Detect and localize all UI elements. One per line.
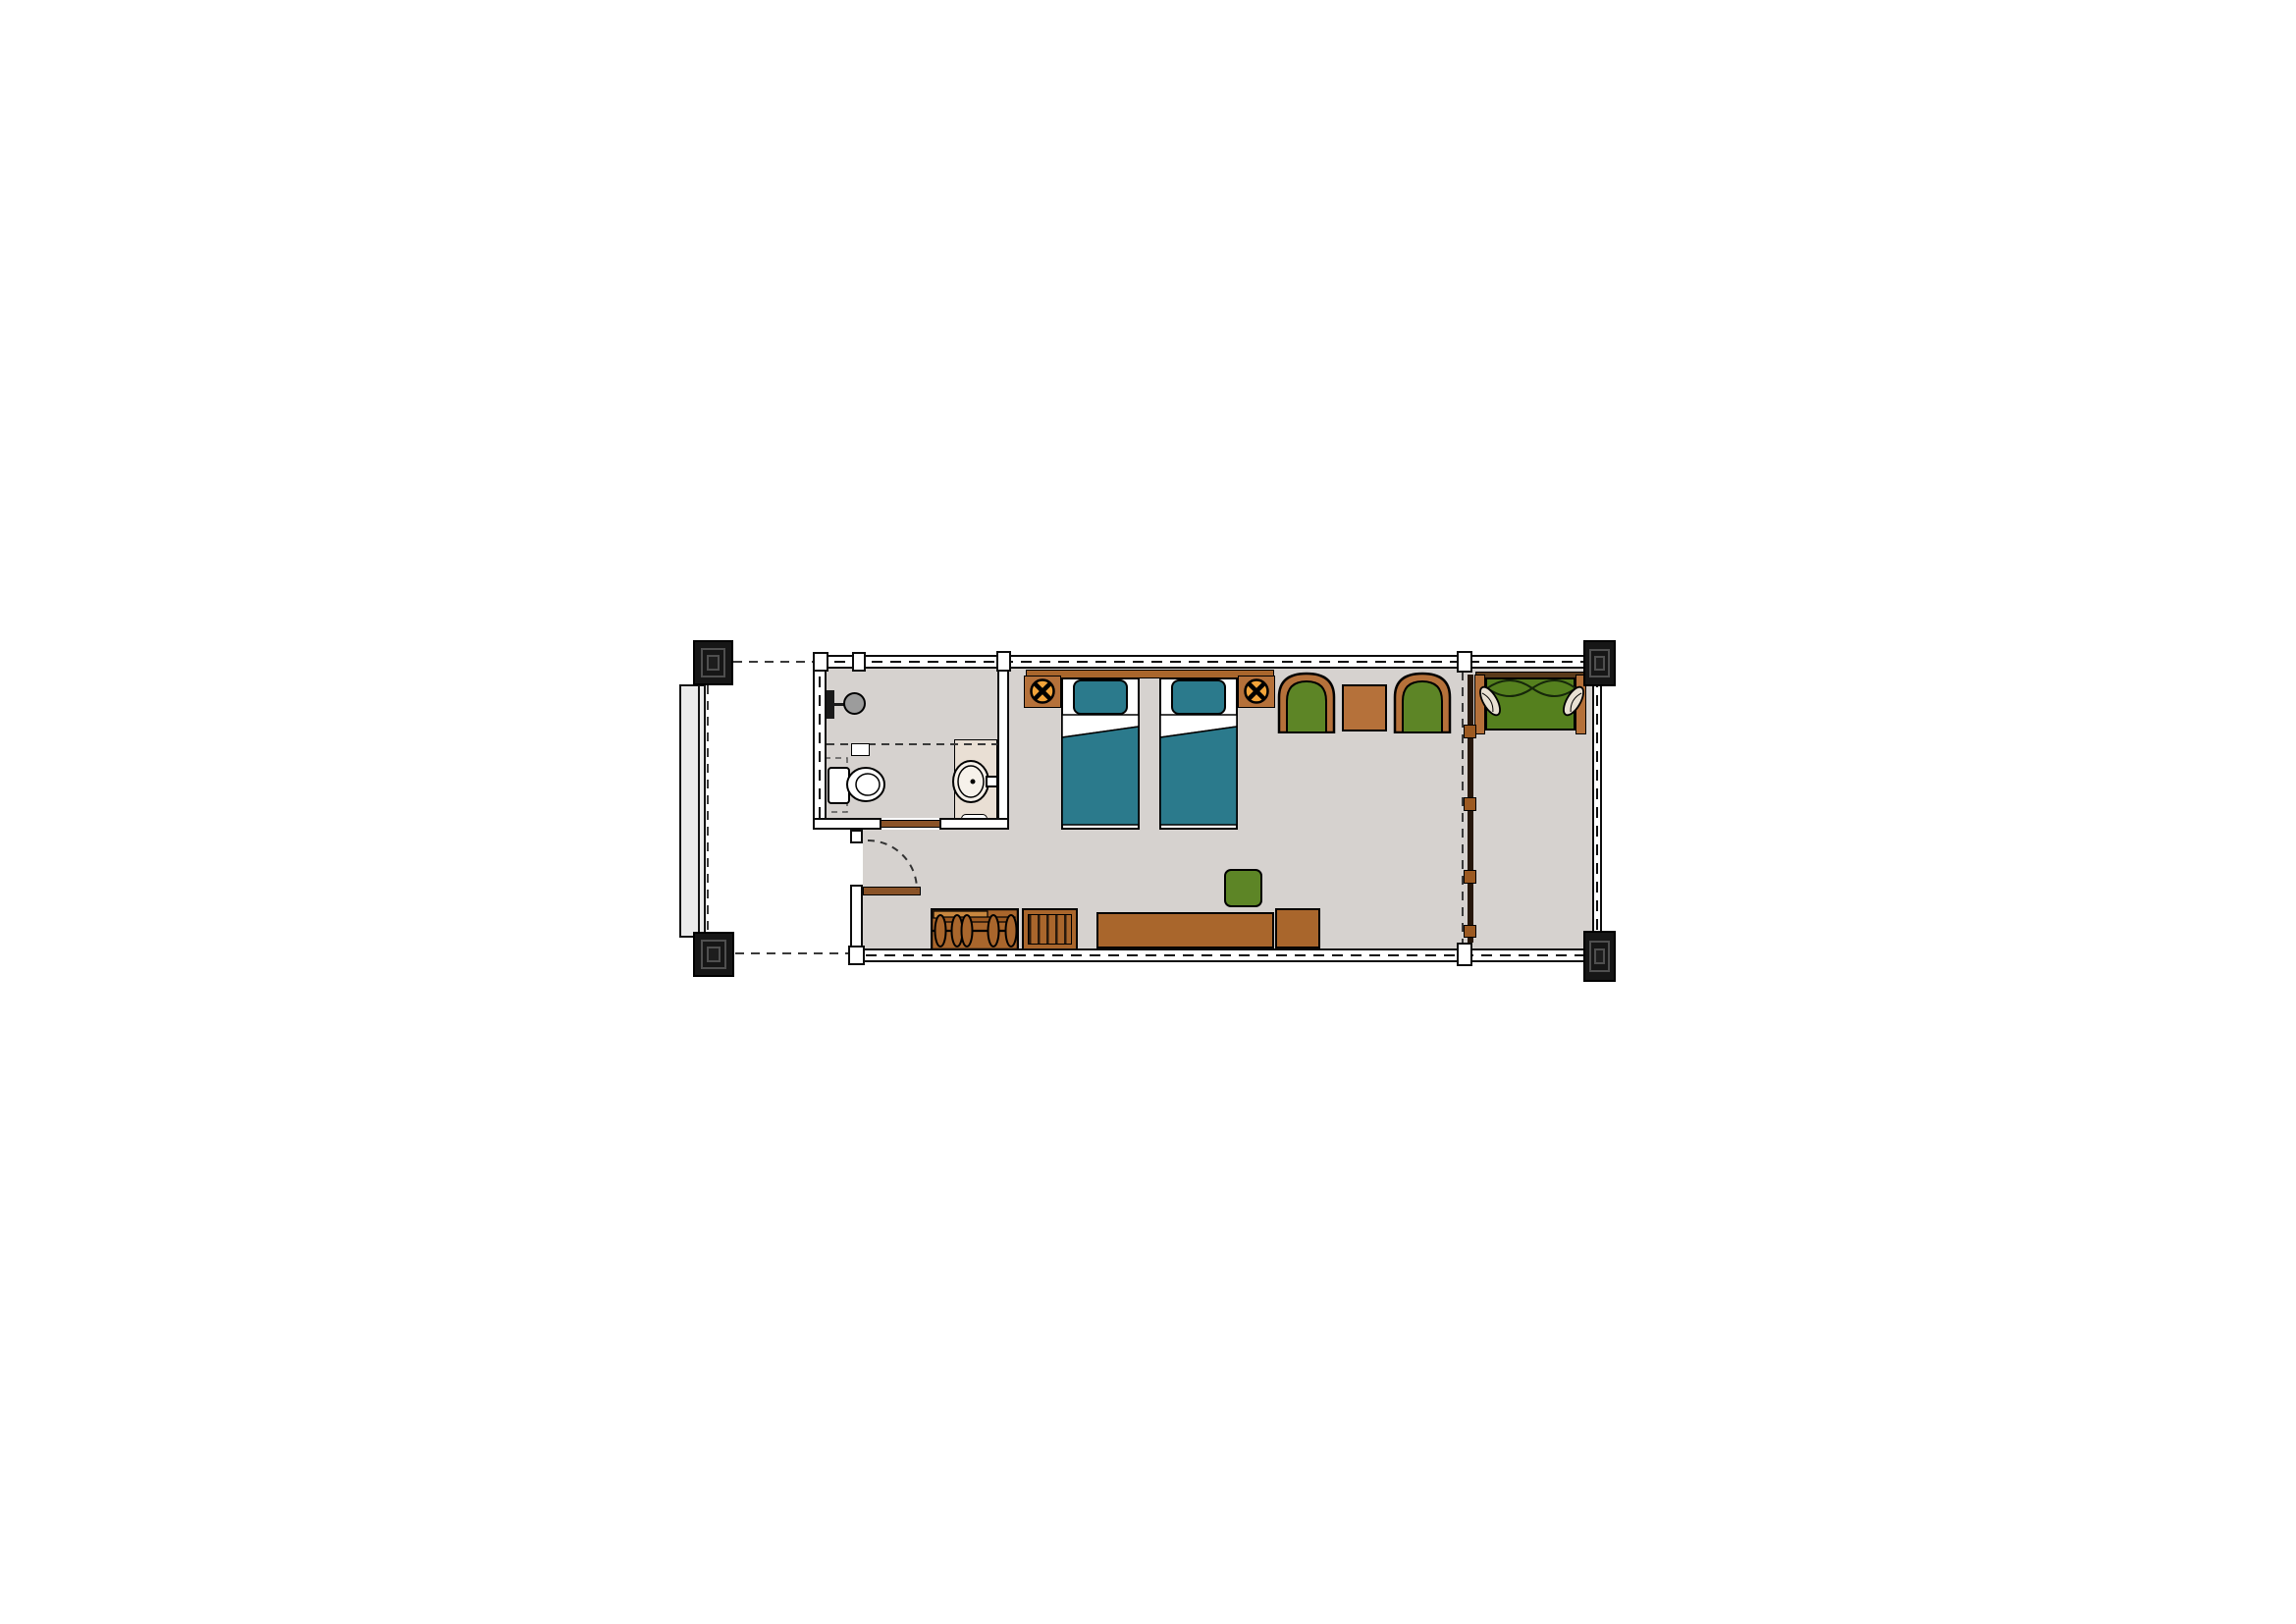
pillow: [1172, 680, 1225, 714]
structural-column-top-right: [1583, 640, 1616, 686]
daybed-pillow-left: [1475, 683, 1505, 719]
bathroom-wall-bottom-right: [939, 818, 1009, 830]
armchair-left: [1276, 671, 1337, 733]
rack-strap: [1006, 915, 1017, 947]
window-wall-right: [1592, 655, 1602, 962]
column-grid-dash-left: [707, 685, 709, 931]
column-core: [1594, 656, 1605, 671]
luggage-rack: [931, 908, 1019, 950]
desk-return-cabinet: [1275, 908, 1320, 948]
hotel-room-floor-plan: [677, 636, 1620, 994]
column-grid-dash-bottom: [735, 952, 851, 954]
partition-handle: [1464, 925, 1476, 938]
toilet-tank: [828, 768, 849, 803]
sink-drain: [971, 780, 976, 785]
twin-bed-left: [1061, 677, 1140, 830]
column-core: [707, 655, 720, 670]
wall-stub-bottom-left: [848, 946, 865, 965]
vanity-sink: [952, 760, 999, 805]
column-bevel: [1589, 649, 1610, 678]
wall-stub-partition-bottom: [1457, 943, 1472, 966]
minibar-louvers: [1028, 914, 1072, 945]
side-table: [1342, 684, 1387, 731]
bathroom-wall-bottom-left: [813, 818, 881, 830]
column-bevel: [701, 648, 725, 677]
bathroom-wall-left: [813, 655, 827, 830]
armchair-seat: [1287, 681, 1326, 732]
armchair-right: [1392, 671, 1453, 733]
column-bevel: [701, 940, 726, 968]
twin-bed-right: [1159, 677, 1238, 830]
access-walkway: [679, 684, 706, 938]
toilet: [823, 756, 887, 815]
structural-column-top-left: [693, 640, 733, 685]
wall-stub-top-a: [852, 652, 866, 672]
column-bevel: [1589, 941, 1610, 973]
structural-column-bottom-left: [693, 932, 734, 977]
rack-strap: [962, 915, 973, 947]
wall-stub-partition-top: [1457, 651, 1472, 673]
floor-plan-canvas: [0, 0, 2296, 1624]
column-grid-dash-top: [733, 661, 815, 663]
bathroom-wall-right: [997, 669, 1009, 830]
sink-faucet: [987, 777, 997, 786]
toilet-bowl-inner: [856, 774, 880, 795]
bathroom-sliding-door-leaf: [880, 820, 940, 828]
table-lamp-left-icon: [1029, 677, 1056, 705]
partition-handle: [1464, 870, 1476, 884]
soap-niche: [851, 743, 870, 756]
shower-valve-bar: [827, 690, 834, 719]
wall-stub-bathroom-junction: [996, 651, 1011, 672]
exterior-wall-top: [813, 655, 1604, 669]
rack-strap: [935, 915, 946, 947]
daybed-pillow-right: [1559, 683, 1588, 719]
vestibule-wall-upper: [850, 830, 863, 843]
column-core: [707, 947, 720, 961]
table-lamp-right-icon: [1243, 677, 1270, 705]
desk-console: [1096, 912, 1274, 948]
exterior-wall-bottom: [863, 948, 1604, 962]
bed-cover: [1062, 727, 1139, 825]
partition-handle: [1464, 725, 1476, 738]
pillow: [1074, 680, 1127, 714]
structural-column-bottom-right: [1583, 931, 1616, 982]
minibar-cabinet: [1022, 908, 1078, 950]
shower-head: [843, 692, 866, 715]
partition-handle: [1464, 797, 1476, 811]
stool: [1224, 869, 1262, 907]
wall-stub-top-left-corner: [813, 652, 828, 672]
column-core: [1594, 948, 1605, 965]
armchair-seat: [1403, 681, 1442, 732]
rack-strap: [988, 915, 999, 947]
bed-cover: [1160, 727, 1237, 825]
vestibule-wall-lower: [850, 885, 863, 948]
entry-door-swing-arc: [862, 835, 925, 895]
